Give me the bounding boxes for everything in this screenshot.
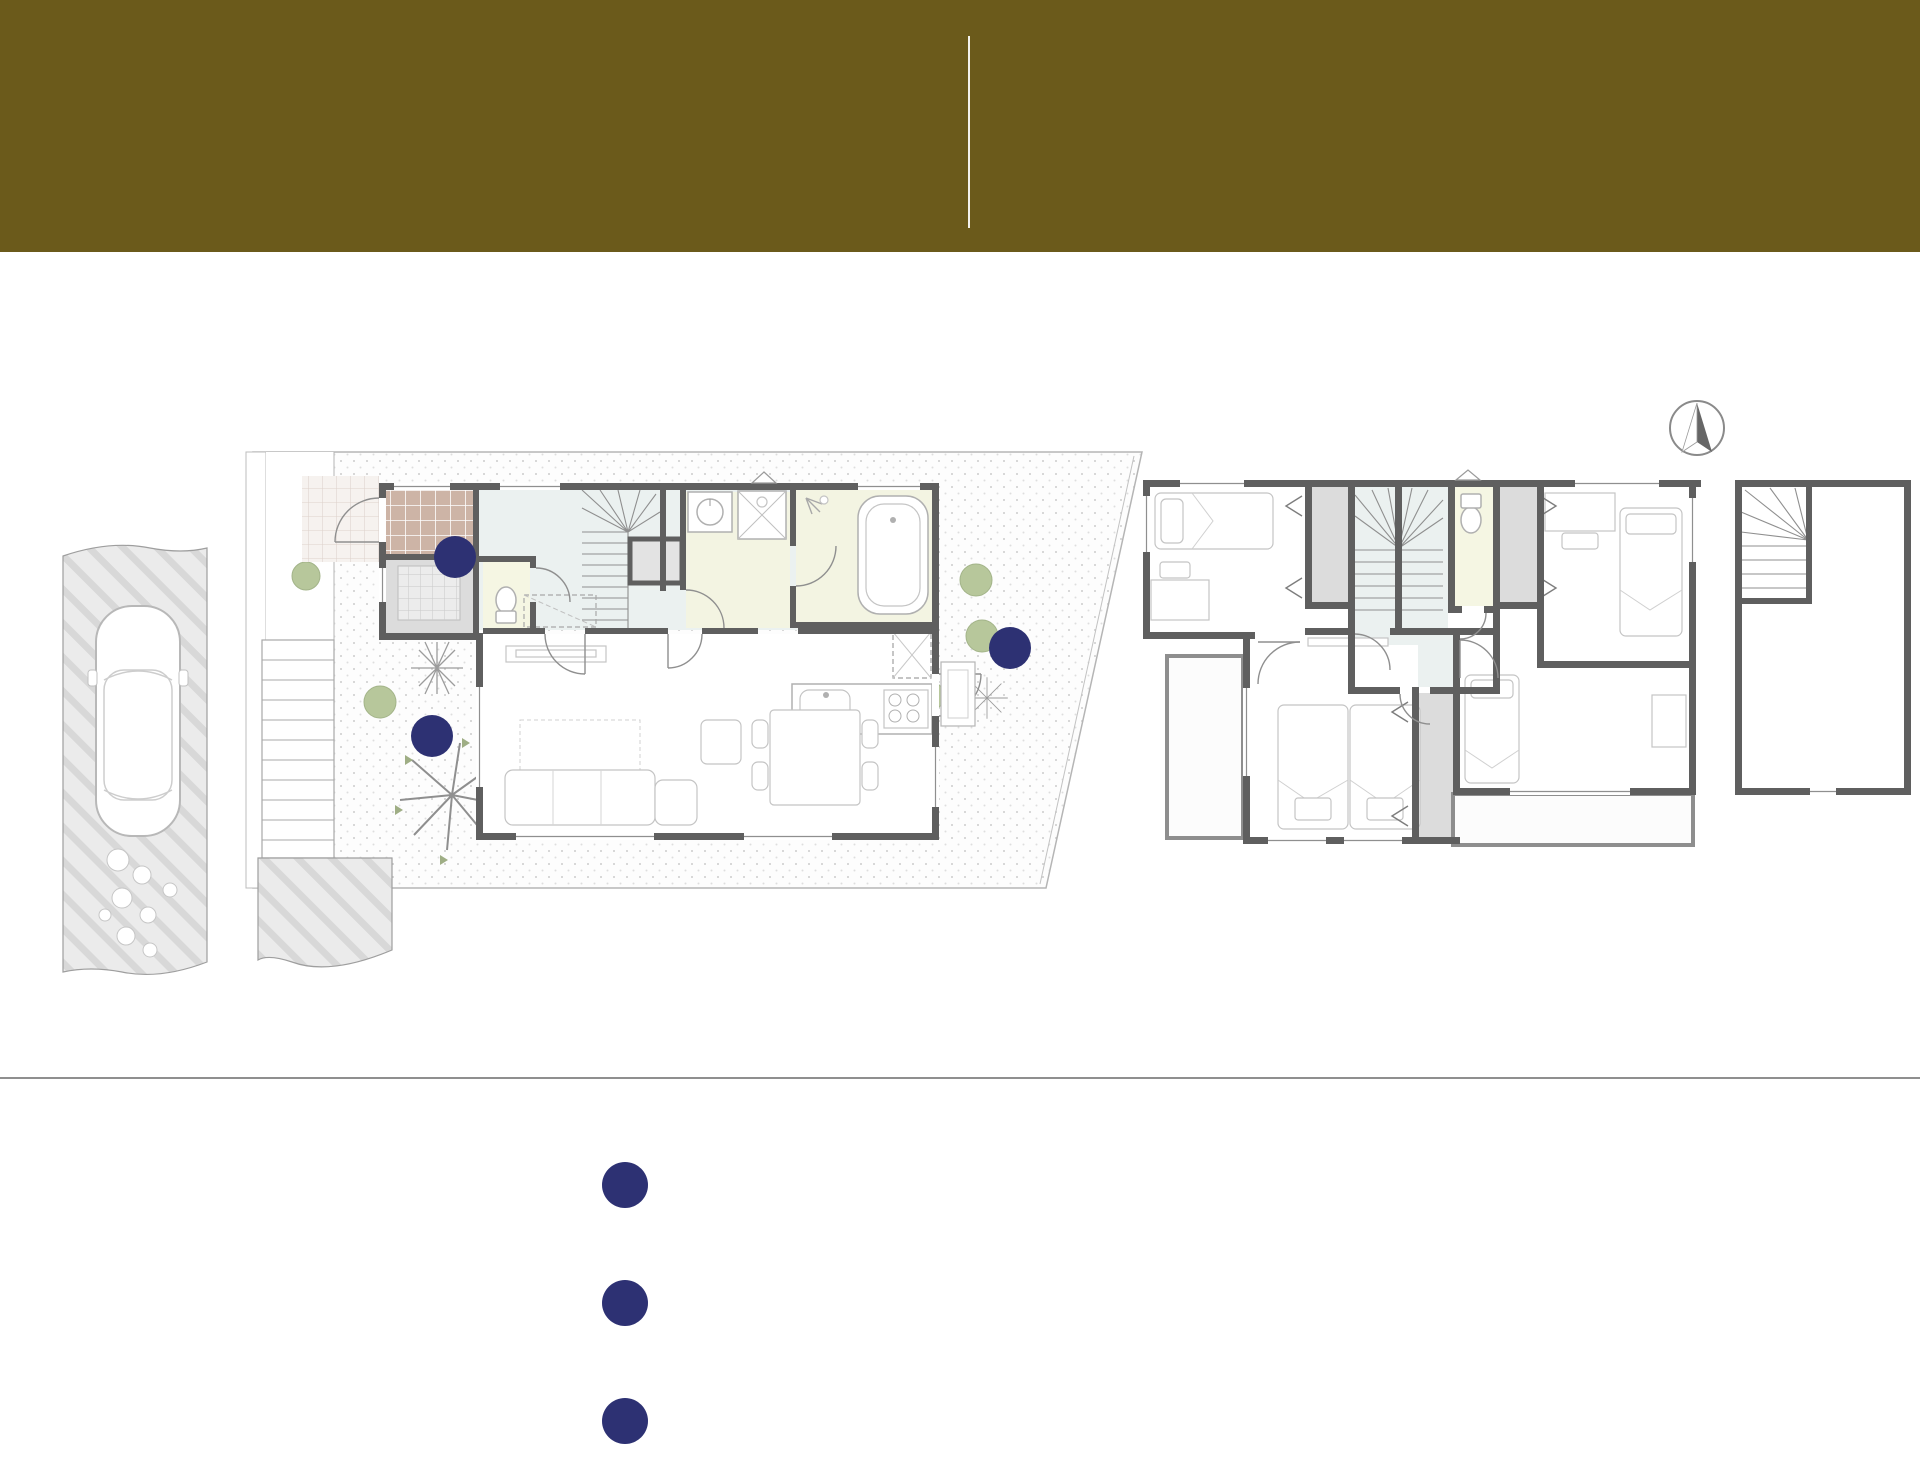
washer-icon	[738, 491, 786, 539]
pickup-item-2-badge	[602, 1280, 648, 1326]
badge-3-circle	[434, 536, 476, 578]
pickup-item-3-badge	[602, 1398, 648, 1444]
pickup-item-3	[602, 1398, 664, 1444]
washstand-icon	[688, 492, 732, 532]
exterior-stairs	[262, 640, 334, 858]
driveway	[63, 545, 207, 974]
pickup-item-2	[602, 1280, 664, 1326]
pickup-item-1	[602, 1162, 664, 1208]
pickup-item-1-badge	[602, 1162, 648, 1208]
compass-icon	[1670, 401, 1724, 455]
floor2-plan	[1143, 470, 1701, 845]
floor-plan-drawing	[0, 250, 1920, 1080]
plan-sheet	[0, 0, 1920, 1471]
footer-divider	[0, 1077, 1920, 1079]
balcony-south	[1453, 794, 1693, 845]
dining-set	[752, 710, 878, 805]
badge-2-circle	[989, 627, 1031, 669]
tv-board	[506, 646, 606, 662]
header-band	[0, 0, 1920, 252]
header-divider	[968, 36, 970, 228]
car-icon	[88, 606, 188, 836]
storage-box	[630, 539, 682, 583]
badge-1-circle	[411, 715, 453, 757]
retaining-wall-lower	[258, 858, 392, 967]
stepcabin-plan	[1735, 480, 1911, 795]
toilet2-icon	[1461, 494, 1481, 533]
balcony-west	[1167, 656, 1243, 838]
toilet-icon	[496, 587, 516, 623]
